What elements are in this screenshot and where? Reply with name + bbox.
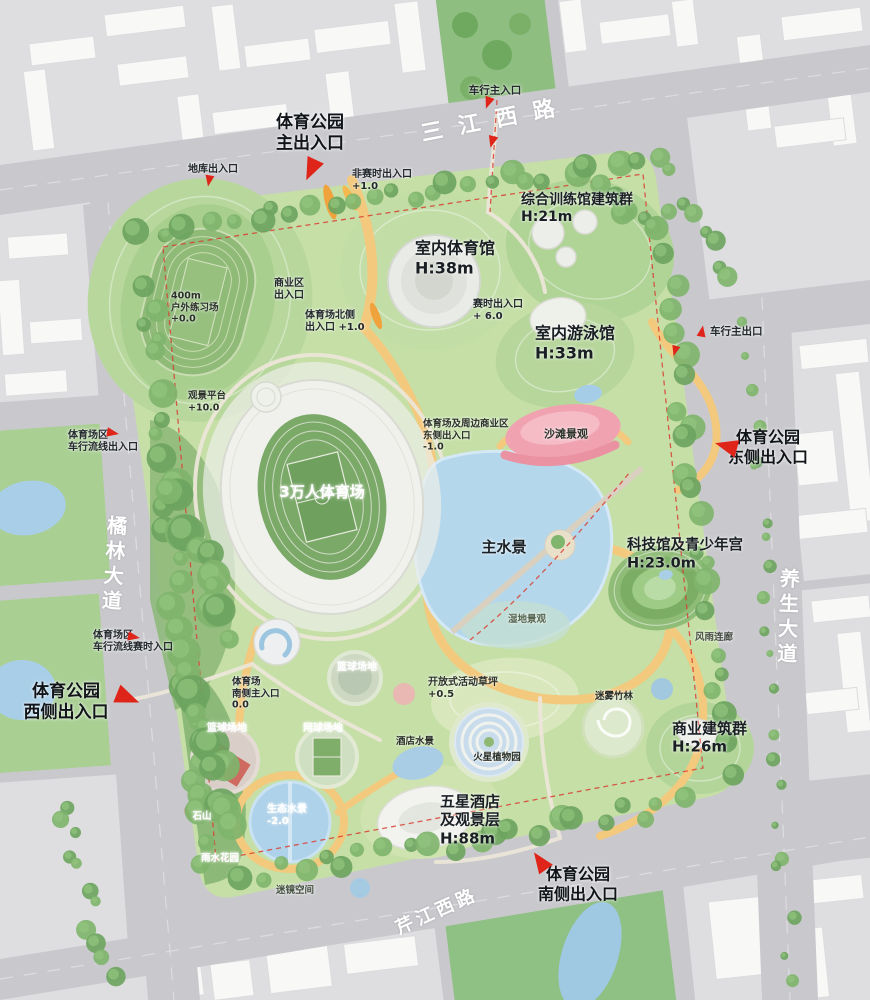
viewing-platform xyxy=(251,382,281,412)
map-canvas xyxy=(0,0,870,1000)
pondlet xyxy=(350,878,370,898)
masterplan-map: 三江西路橘林大道养生大道芹江西路体育公园主出入口体育公园东侧出入口体育公园西侧出… xyxy=(0,0,870,1000)
amphitheater-swirl xyxy=(254,619,300,665)
mars-botanic-spiral xyxy=(449,702,529,782)
pink-plaza xyxy=(393,683,415,705)
indoor-gym-dome xyxy=(388,235,480,327)
small-pond xyxy=(651,678,673,700)
